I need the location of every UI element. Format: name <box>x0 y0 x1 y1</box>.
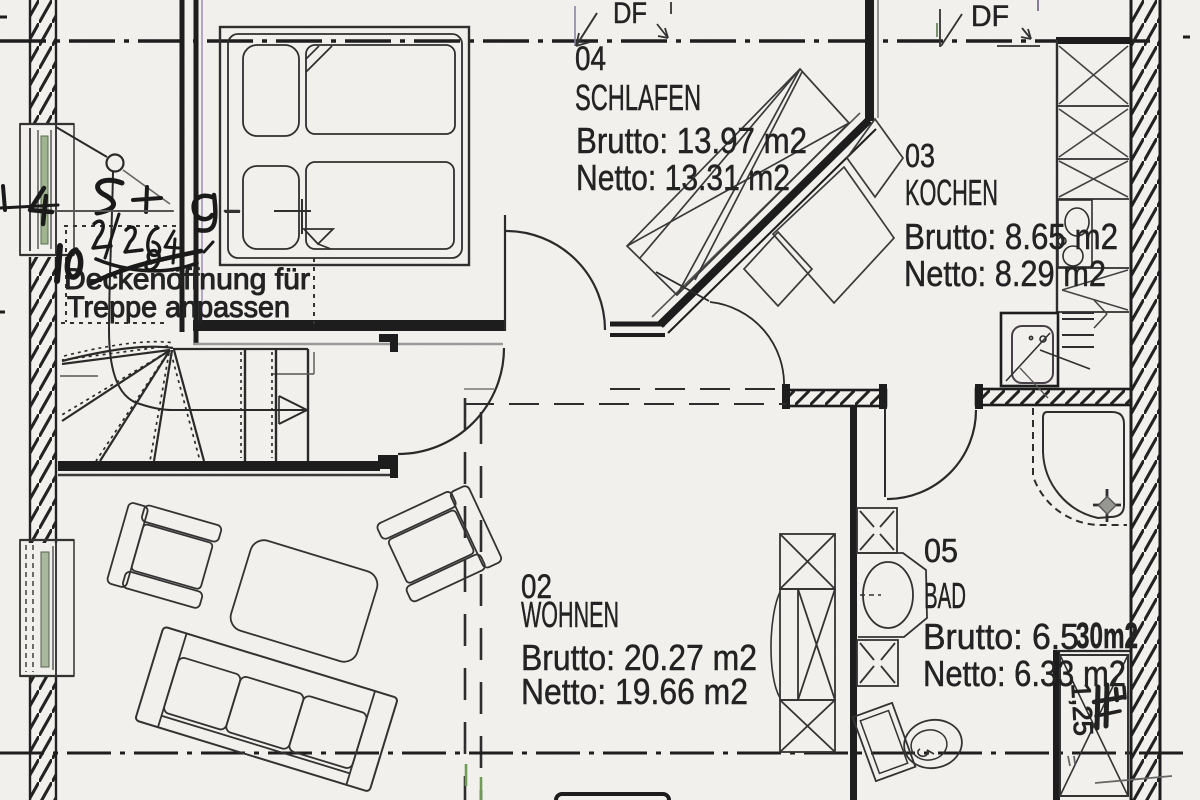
svg-text:WOHNEN: WOHNEN <box>521 594 619 635</box>
svg-text:04: 04 <box>575 40 606 78</box>
svg-text:Netto: 13.31 m2: Netto: 13.31 m2 <box>576 157 790 198</box>
svg-text:DF: DF <box>613 0 647 30</box>
svg-text:Treppe anpassen: Treppe anpassen <box>67 291 290 324</box>
svg-text:Netto: 8.29 m2: Netto: 8.29 m2 <box>904 253 1106 294</box>
svg-text:Brutto: 6.5: Brutto: 6.5 <box>923 616 1079 657</box>
svg-text:SCHLAFEN: SCHLAFEN <box>575 77 701 118</box>
svg-text:Netto: 19.66 m2: Netto: 19.66 m2 <box>521 671 748 712</box>
svg-text:BAD: BAD <box>924 575 966 616</box>
svg-text:30m2: 30m2 <box>1076 615 1138 656</box>
svg-text:05: 05 <box>924 532 958 569</box>
svg-text:1,25: 1,25 <box>1066 683 1099 737</box>
svg-text:03: 03 <box>905 137 935 174</box>
svg-text:KOCHEN: KOCHEN <box>905 172 998 213</box>
svg-text:Brutto: 13.97 m2: Brutto: 13.97 m2 <box>576 120 807 161</box>
svg-text:Brutto: 8.65 m2: Brutto: 8.65 m2 <box>904 216 1118 257</box>
svg-text:DF: DF <box>971 0 1009 33</box>
